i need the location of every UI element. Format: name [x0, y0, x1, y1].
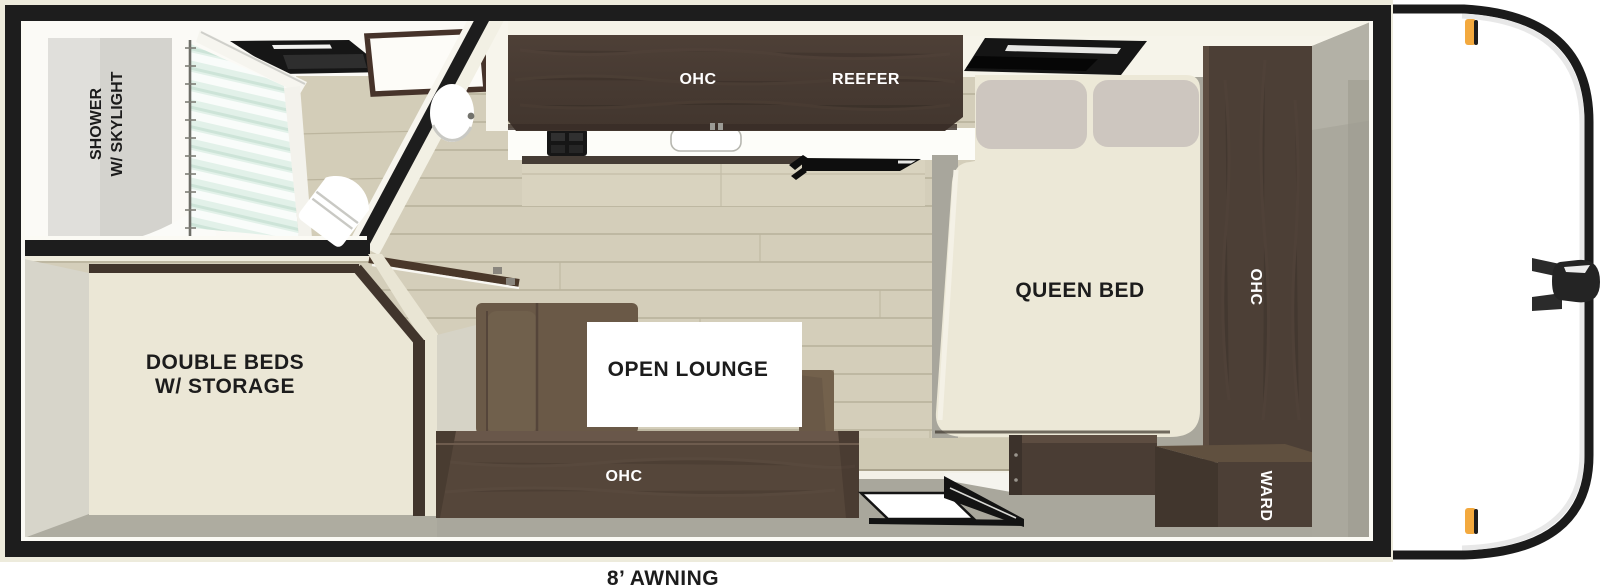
svg-text:W/ STORAGE: W/ STORAGE: [155, 375, 295, 398]
svg-text:REEFER: REEFER: [832, 71, 900, 88]
svg-text:OHC: OHC: [605, 468, 642, 485]
svg-text:DOUBLE BEDS: DOUBLE BEDS: [146, 351, 304, 374]
svg-text:QUEEN BED: QUEEN BED: [1015, 279, 1144, 302]
svg-text:OPEN LOUNGE: OPEN LOUNGE: [608, 358, 769, 381]
svg-text:8’ AWNING: 8’ AWNING: [607, 567, 719, 586]
svg-text:OHC: OHC: [679, 71, 716, 88]
svg-text:WARD: WARD: [1257, 471, 1274, 522]
svg-text:OHC: OHC: [1247, 268, 1264, 305]
